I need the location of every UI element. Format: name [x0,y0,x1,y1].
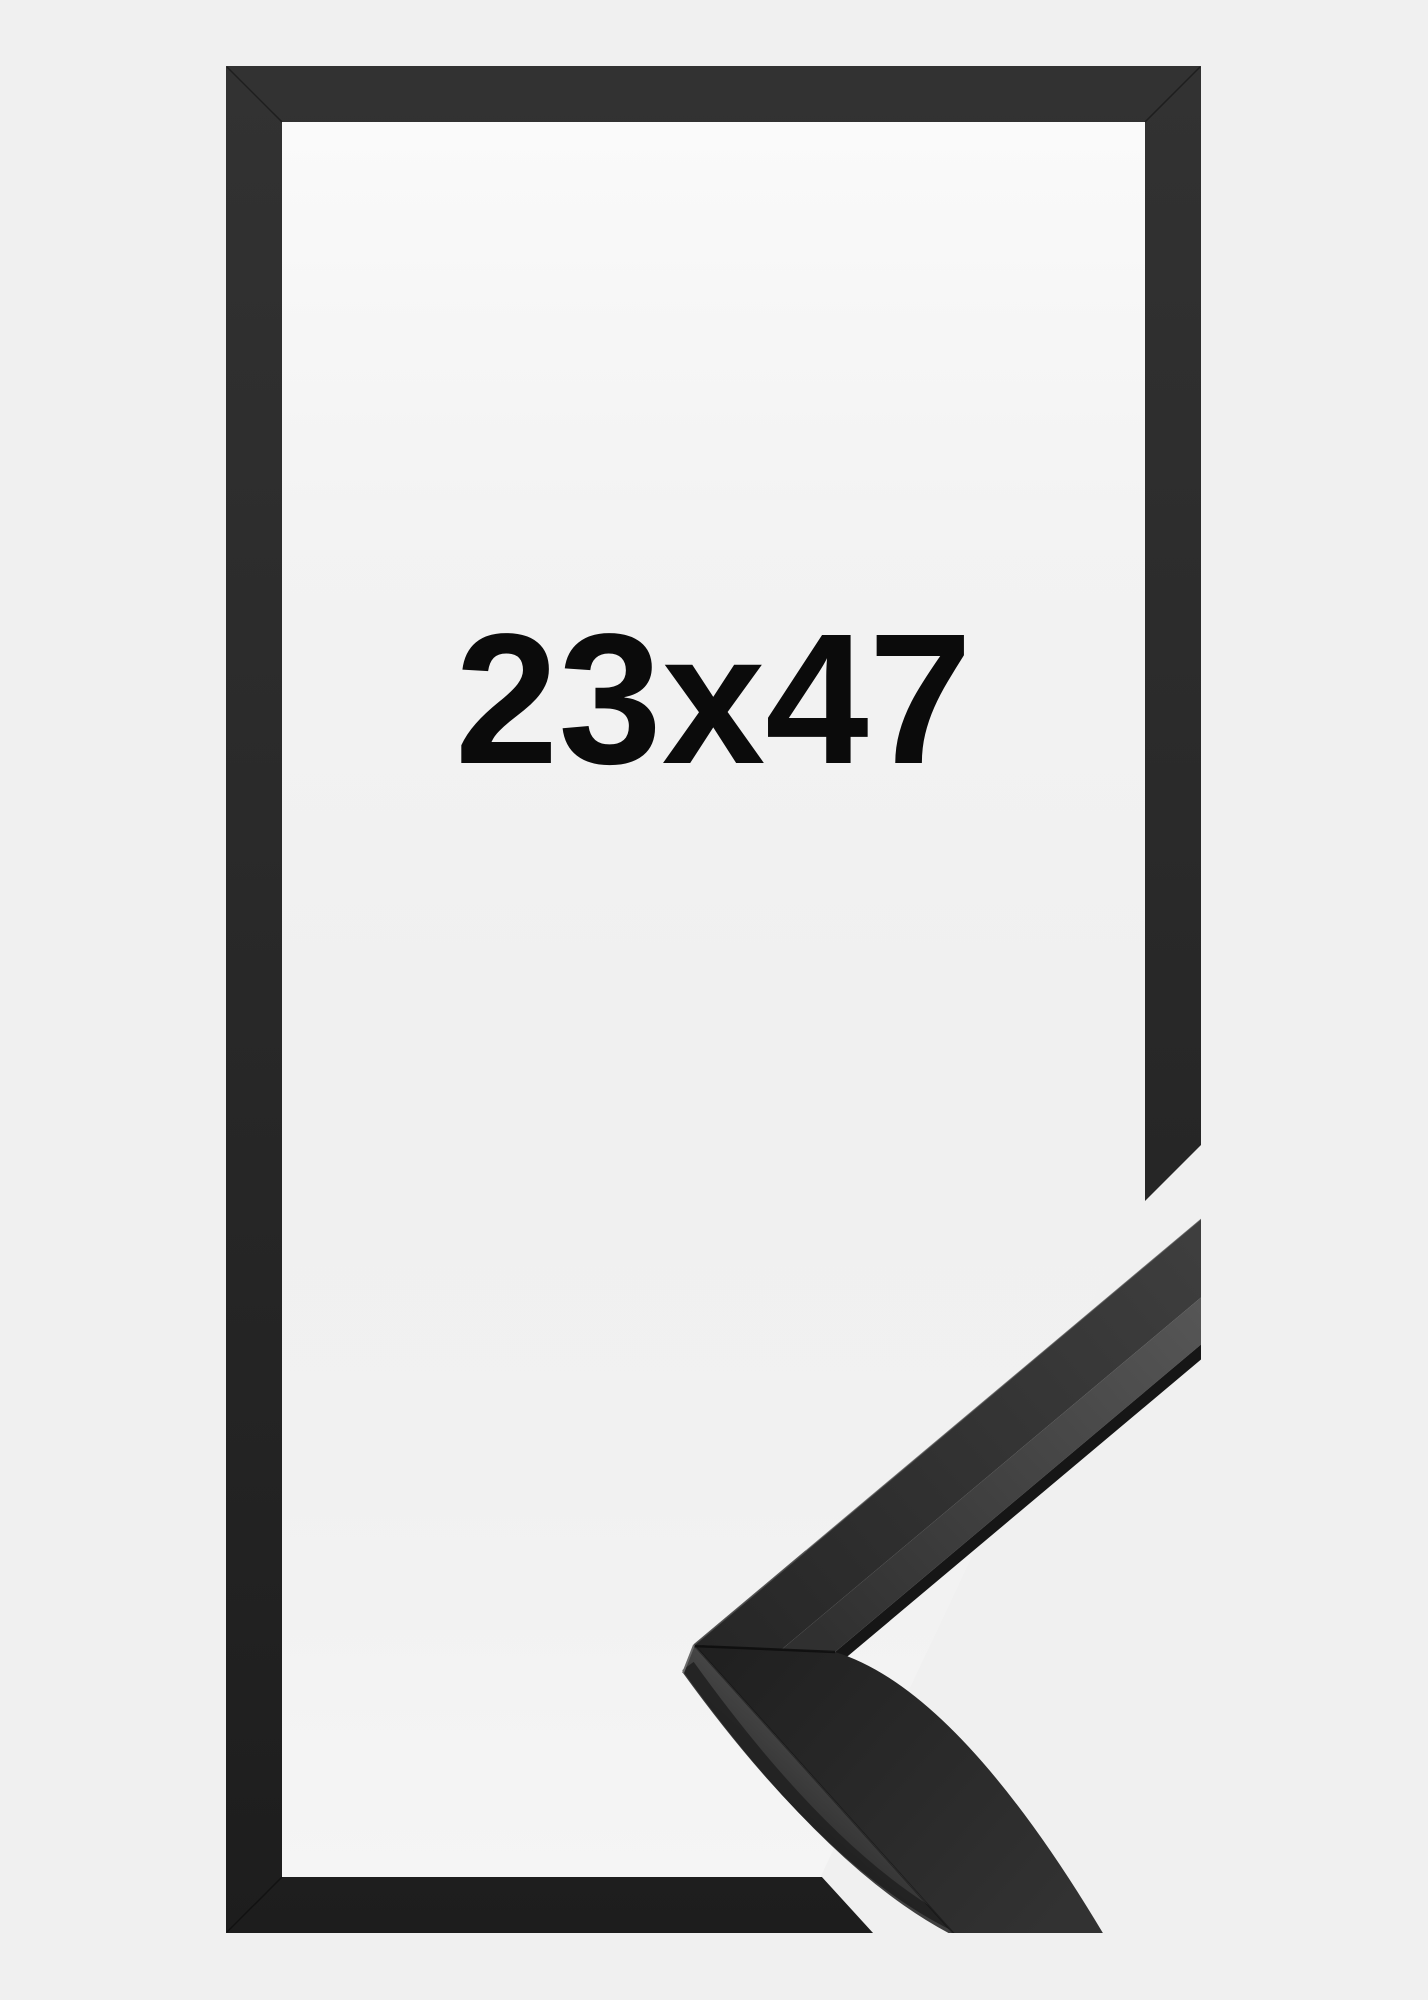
corner-detail-overlay [226,66,1201,1933]
product-image-canvas: 23x47 [0,0,1428,2000]
frame-product-photo: 23x47 [226,66,1201,1933]
